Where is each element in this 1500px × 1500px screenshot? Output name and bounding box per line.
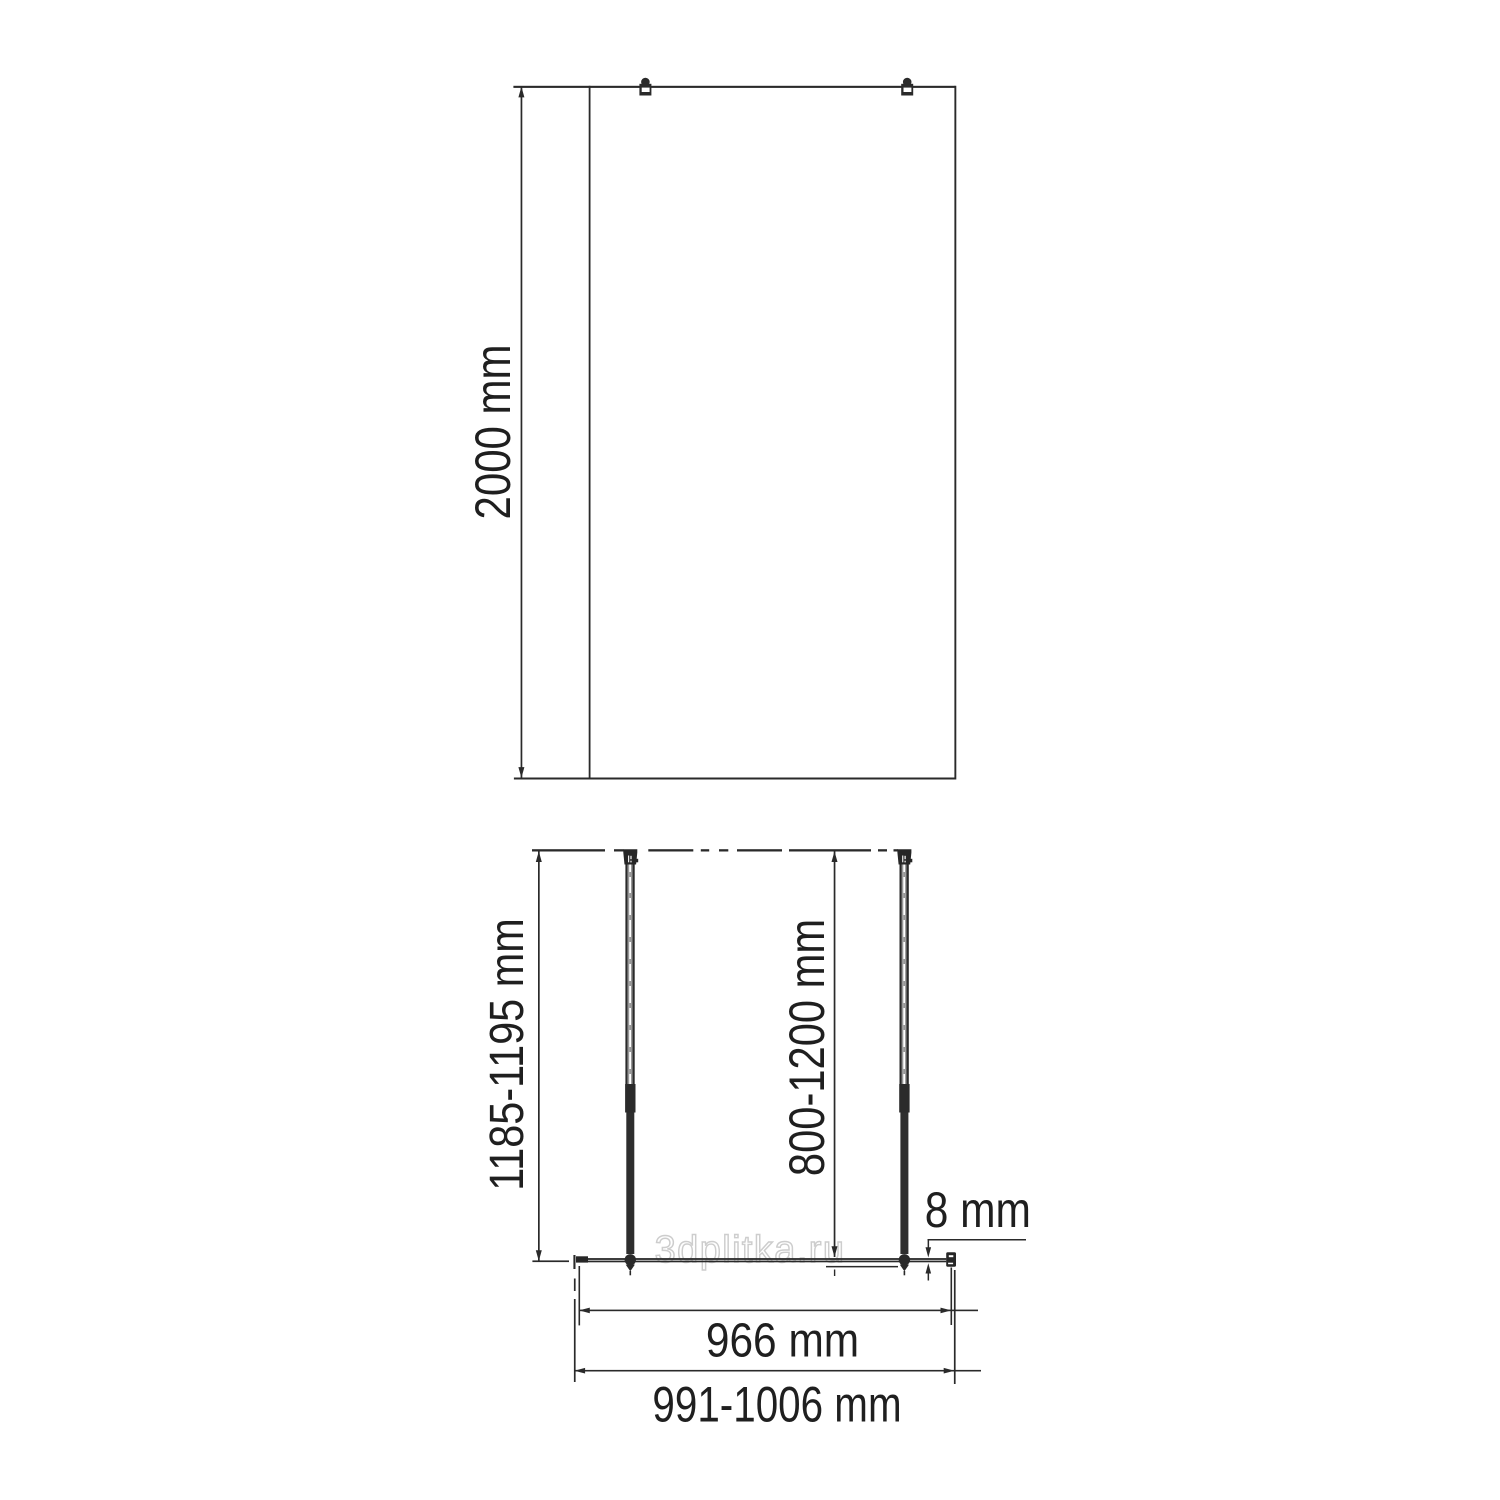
- svg-text:800-1200 mm: 800-1200 mm: [778, 919, 834, 1176]
- svg-text:966 mm: 966 mm: [706, 1313, 859, 1367]
- svg-text:991-1006 mm: 991-1006 mm: [652, 1377, 901, 1433]
- svg-text:8 mm: 8 mm: [925, 1182, 1031, 1238]
- svg-text:1185-1195 mm: 1185-1195 mm: [479, 918, 534, 1190]
- svg-text:2000 mm: 2000 mm: [465, 344, 521, 519]
- svg-text:3dplitka.ru: 3dplitka.ru: [655, 1229, 846, 1271]
